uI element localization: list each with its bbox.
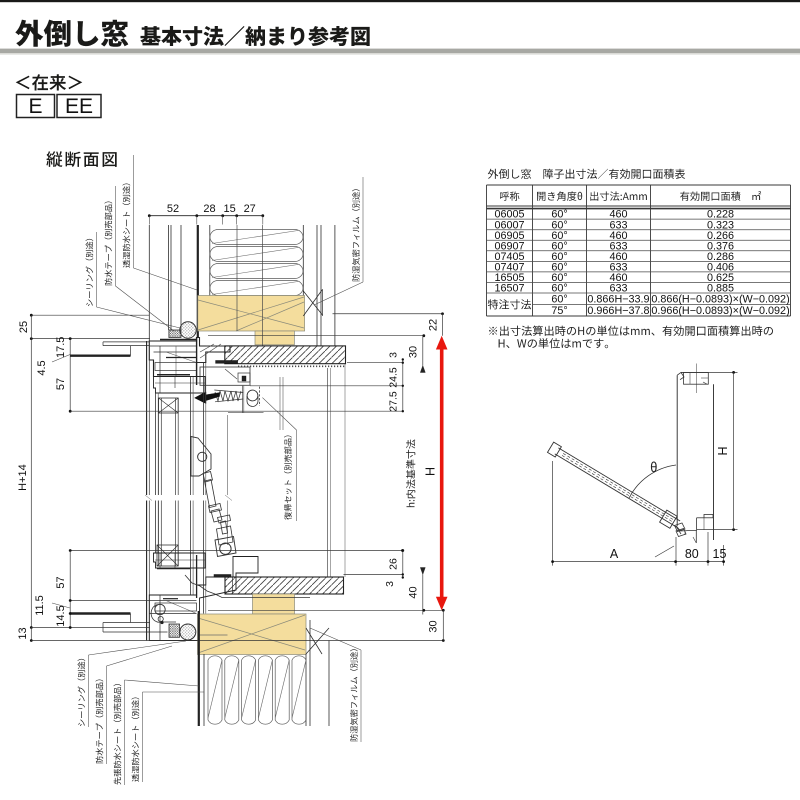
svg-text:H: H [716,446,730,455]
svg-text:3: 3 [388,352,400,358]
svg-text:57: 57 [55,576,67,588]
svg-text:4.5: 4.5 [36,360,48,375]
svg-text:14.5: 14.5 [55,605,67,626]
svg-text:13: 13 [17,627,29,639]
svg-text:H+14: H+14 [17,464,29,491]
svg-text:28: 28 [203,203,215,215]
svg-text:0.966H−37.8: 0.966H−37.8 [587,305,649,317]
svg-text:A: A [610,547,619,561]
svg-text:11.5: 11.5 [34,595,46,616]
svg-text:30: 30 [428,620,440,632]
svg-text:26: 26 [388,558,400,570]
svg-text:30: 30 [408,346,420,358]
svg-text:57: 57 [55,378,67,390]
svg-text:22: 22 [428,319,440,331]
svg-text:15: 15 [713,547,727,561]
svg-text:0.866H−33.9: 0.866H−33.9 [587,294,649,306]
svg-text:15: 15 [223,203,235,215]
svg-text:27.5: 27.5 [388,391,400,412]
svg-text:27: 27 [244,203,256,215]
svg-text:25: 25 [18,321,30,333]
svg-text:EE: EE [65,95,93,118]
svg-text:60°: 60° [551,294,567,306]
svg-text:0.866(H−0.0893)×(W−0.092): 0.866(H−0.0893)×(W−0.092) [651,294,789,306]
svg-text:3: 3 [384,581,396,587]
svg-text:0.966(H−0.0893)×(W−0.092): 0.966(H−0.0893)×(W−0.092) [651,305,789,317]
svg-text:16507: 16507 [494,283,524,295]
svg-text:80: 80 [685,547,699,561]
svg-text:17.5: 17.5 [55,337,67,358]
svg-text:24.5: 24.5 [388,367,400,388]
svg-text:H: H [424,467,438,476]
svg-text:75°: 75° [551,305,567,317]
svg-text:E: E [28,95,42,118]
svg-text:40: 40 [408,586,420,598]
svg-text:52: 52 [167,203,179,215]
